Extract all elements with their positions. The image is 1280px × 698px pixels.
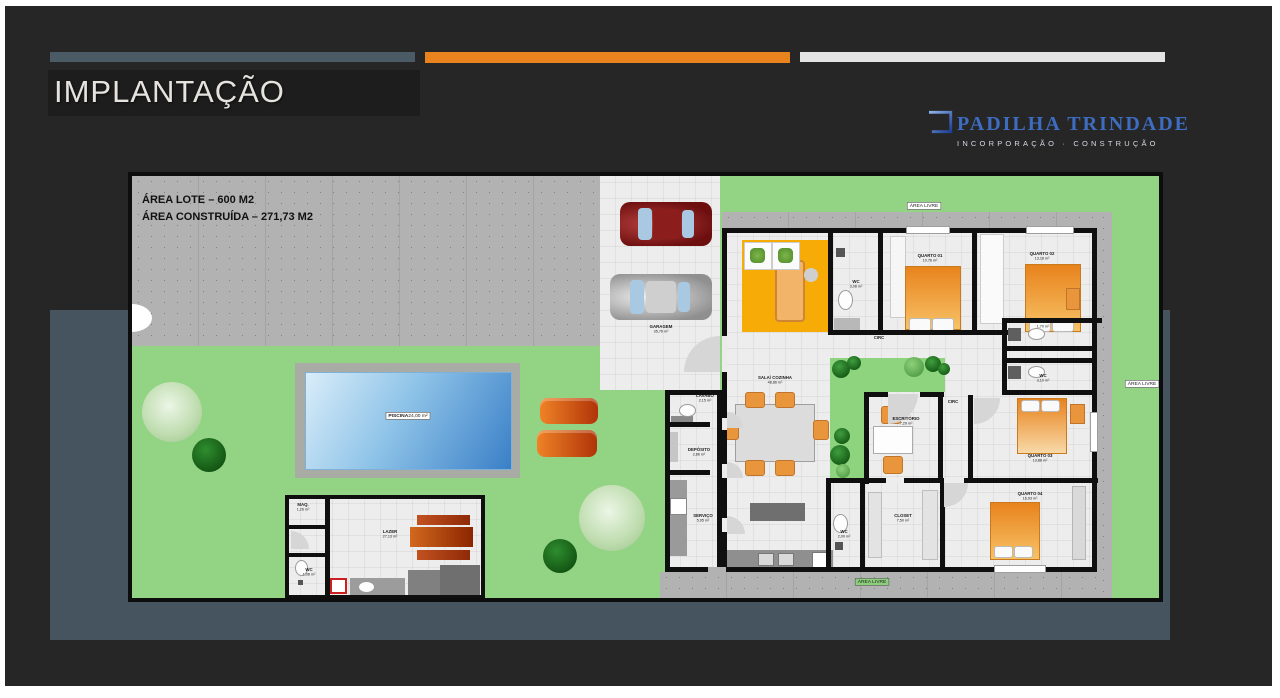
room-label-wc-lazer: WC1,08 m² bbox=[303, 568, 316, 577]
car-windshield bbox=[638, 208, 652, 240]
room-label-circ2: CIRC bbox=[948, 400, 959, 405]
sun-lounger-icon bbox=[537, 430, 597, 457]
chair-icon bbox=[745, 460, 765, 476]
wardrobe bbox=[922, 490, 938, 560]
logo-tagline: INCORPORAÇÃO · CONSTRUÇÃO bbox=[957, 139, 1190, 148]
room-label-quarto04: QUARTO 0416,93 m² bbox=[1018, 492, 1043, 501]
room-label-quarto03: QUARTO 0313,86 m² bbox=[1028, 454, 1053, 463]
red-car-icon bbox=[620, 202, 712, 246]
laundry-counter bbox=[667, 480, 687, 556]
wardrobe bbox=[1072, 486, 1086, 560]
room-label-closet: CLOSET7,50 m² bbox=[894, 514, 912, 523]
dresser-icon bbox=[1070, 404, 1085, 424]
fixture bbox=[835, 542, 843, 550]
plant-icon bbox=[938, 363, 950, 375]
area-livre-badge-bottom: ÁREA LIVRE bbox=[855, 578, 889, 586]
tree-icon bbox=[579, 485, 645, 551]
chair-icon bbox=[883, 456, 903, 474]
car-roof bbox=[653, 209, 681, 239]
wall bbox=[722, 532, 727, 572]
silver-car-icon bbox=[610, 274, 712, 320]
car-windshield bbox=[630, 280, 644, 314]
wall bbox=[1002, 318, 1102, 323]
plant-icon bbox=[830, 445, 850, 465]
site-plan: ÁREA LOTE – 600 M2 ÁREA CONSTRUÍDA – 271… bbox=[128, 172, 1163, 602]
lot-area-note: ÁREA LOTE – 600 M2 bbox=[142, 192, 313, 209]
door-opening bbox=[722, 336, 727, 372]
wall bbox=[828, 330, 1008, 335]
wall bbox=[1002, 358, 1097, 363]
wall bbox=[938, 392, 943, 478]
door-opening bbox=[722, 464, 727, 478]
page: IMPLANTAÇÃO PADILHA TRINDADE INCORPORAÇÃ… bbox=[0, 0, 1280, 698]
logo-company-name: PADILHA TRINDADE bbox=[957, 113, 1190, 136]
built-area-note: ÁREA CONSTRUÍDA – 271,73 M2 bbox=[142, 209, 313, 226]
room-label-wc2: WC3,10 m² bbox=[1037, 374, 1050, 383]
plant-icon bbox=[836, 464, 850, 478]
wall bbox=[1002, 346, 1097, 351]
pillow bbox=[994, 546, 1013, 558]
door-opening bbox=[944, 478, 964, 483]
wall bbox=[826, 478, 831, 568]
chair-icon bbox=[775, 392, 795, 408]
door-opening bbox=[886, 478, 904, 483]
plant-tile bbox=[772, 242, 800, 270]
sink-icon bbox=[758, 553, 774, 566]
company-logo: PADILHA TRINDADE INCORPORAÇÃO · CONSTRUÇ… bbox=[905, 88, 1190, 172]
room-label-quarto02: QUARTO 0213,18 m² bbox=[1030, 252, 1055, 261]
wall bbox=[864, 392, 869, 484]
wall bbox=[722, 430, 727, 464]
kitchen-island bbox=[750, 503, 805, 521]
wall bbox=[828, 232, 833, 332]
plant-icon bbox=[904, 357, 924, 377]
room-label-lazer: LAZER27,13 m² bbox=[383, 530, 398, 539]
window bbox=[994, 565, 1046, 573]
sidewalk-right bbox=[1097, 212, 1112, 598]
plant-icon bbox=[778, 248, 793, 263]
wardrobe bbox=[980, 234, 1004, 324]
vanity bbox=[834, 318, 860, 330]
washer-icon bbox=[670, 498, 687, 515]
shelf bbox=[668, 432, 678, 462]
room-label-quarto01: QUARTO 0110,76 m² bbox=[918, 254, 943, 263]
wardrobe bbox=[868, 492, 882, 558]
tree-icon bbox=[543, 539, 577, 573]
accent-bar-orange bbox=[425, 52, 790, 63]
dresser-icon bbox=[1066, 288, 1080, 310]
sun-lounger-icon bbox=[540, 398, 598, 424]
page-title: IMPLANTAÇÃO bbox=[54, 74, 285, 110]
window bbox=[906, 226, 950, 234]
plant-tile bbox=[744, 242, 772, 270]
leisure-annex-outline bbox=[285, 495, 485, 599]
room-label-deposito: DEPÓSITO2,86 m² bbox=[688, 448, 710, 457]
lot-notes: ÁREA LOTE – 600 M2 ÁREA CONSTRUÍDA – 271… bbox=[142, 192, 313, 225]
fixture bbox=[1008, 328, 1021, 341]
toilet-icon bbox=[838, 290, 853, 310]
room-label-escritorio: ESCRITÓRIO7,29 m² bbox=[892, 417, 919, 426]
wall bbox=[722, 478, 727, 518]
room-label-circ: CIRC bbox=[874, 336, 885, 341]
car-roof bbox=[646, 281, 676, 313]
wall bbox=[665, 422, 710, 427]
fixture bbox=[836, 248, 845, 257]
accent-bar-slate bbox=[50, 52, 415, 62]
tree-icon bbox=[142, 382, 202, 442]
room-label-servico: SERVIÇO5,95 m² bbox=[693, 514, 712, 523]
window bbox=[1026, 226, 1074, 234]
pool bbox=[305, 372, 512, 470]
chair-icon bbox=[813, 420, 829, 440]
wall bbox=[1002, 390, 1097, 395]
tree-icon bbox=[192, 438, 226, 472]
wall bbox=[1002, 318, 1007, 395]
room-label-sala: SALA/ COZINHA48,86 m² bbox=[758, 376, 792, 385]
door-opening bbox=[708, 567, 726, 572]
plant-icon bbox=[750, 248, 765, 263]
wardrobe bbox=[890, 236, 906, 318]
door-opening bbox=[722, 518, 727, 532]
room-label-garagem: GARAGEM35,76 m² bbox=[650, 325, 673, 334]
chair-icon bbox=[745, 392, 765, 408]
sink-icon bbox=[778, 553, 794, 566]
logo-monogram-icon bbox=[905, 94, 953, 166]
area-livre-badge-right: ÁREA LIVRE bbox=[1125, 380, 1159, 388]
wall bbox=[920, 392, 944, 397]
pool-label: PISCINA24,00 m² bbox=[386, 412, 431, 420]
wall bbox=[972, 232, 977, 330]
toilet-icon bbox=[1028, 328, 1045, 340]
area-livre-badge-top: ÁREA LIVRE bbox=[907, 202, 941, 210]
wall bbox=[878, 232, 883, 330]
room-label-lavabo: LAVABO2,15 m² bbox=[696, 394, 714, 403]
pillow bbox=[1041, 400, 1060, 412]
dining-table-icon bbox=[735, 404, 815, 462]
desk-icon bbox=[873, 426, 913, 454]
pillow bbox=[1014, 546, 1033, 558]
door-opening bbox=[722, 418, 727, 430]
chair-icon bbox=[775, 460, 795, 476]
room-label-wc-suite: WC3,08 m² bbox=[850, 280, 863, 289]
toilet-icon bbox=[679, 404, 696, 417]
wall bbox=[866, 392, 888, 397]
slide: IMPLANTAÇÃO PADILHA TRINDADE INCORPORAÇÃ… bbox=[5, 6, 1272, 686]
pillow bbox=[1021, 400, 1040, 412]
side-table-icon bbox=[804, 268, 818, 282]
plant-icon bbox=[847, 356, 861, 370]
car-rear-window bbox=[682, 210, 694, 238]
room-label-wc1: WC1,70 m² bbox=[1037, 320, 1050, 329]
wall bbox=[860, 483, 865, 568]
window bbox=[1090, 412, 1098, 452]
plant-icon bbox=[834, 428, 850, 444]
accent-bar-white bbox=[800, 52, 1165, 62]
room-label-wc-closet: WC2,00 m² bbox=[838, 530, 851, 539]
room-label-maq: MAQ.1,26 m² bbox=[297, 503, 310, 512]
wall bbox=[968, 395, 973, 483]
wall bbox=[665, 470, 710, 475]
car-rear-window bbox=[678, 282, 690, 312]
fixture bbox=[1008, 366, 1021, 379]
